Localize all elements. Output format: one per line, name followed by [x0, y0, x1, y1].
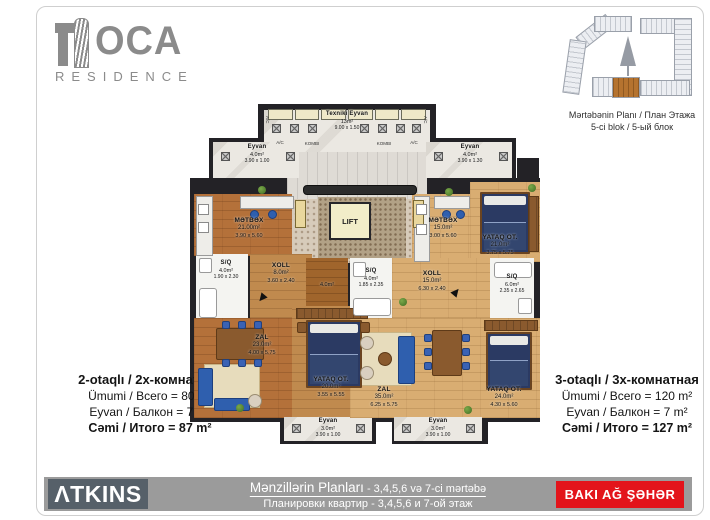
pillow: [484, 196, 526, 205]
dining-chair: [222, 359, 230, 367]
room-name: XOLL: [267, 262, 294, 270]
site-plan-caption-line1: Mərtəbənin Planı / План Этажа: [556, 109, 708, 121]
lift: LIFT: [329, 202, 371, 240]
total-area-line: Ümumi / Всего = 120 m²: [542, 388, 710, 404]
room-area: 21.00m²: [234, 225, 263, 233]
ac-unit-icon: [434, 152, 443, 161]
ac-unit-icon: [356, 424, 365, 433]
pillow: [310, 324, 358, 333]
bathtub-icon: [199, 288, 217, 318]
room-name: YATAQ OT.: [314, 376, 349, 384]
kombi-label: KOMBI: [305, 141, 320, 146]
toilet-icon: [518, 298, 532, 314]
wall-stub-top-right: [517, 158, 539, 182]
ac-label-vertical: A/C: [265, 116, 270, 124]
site-plan-caption-line2: 5-ci blok / 5-ый блок: [556, 121, 708, 133]
room-name: Eyvan: [426, 418, 451, 426]
footer-title: Mənzillərin Planları - 3,4,5,6 və 7-ci m…: [250, 480, 486, 497]
eyvan-bottom-left-label: Eyvan 3.0m² 3.90 x 1.00: [316, 418, 341, 439]
room-name: Eyvan: [316, 418, 341, 426]
zal-right-label: ZAL 35.0m² 6.25 x 5.75: [370, 386, 397, 409]
floor-plan-poster: OCA RESIDENCE Mərtəbənin Planı / План Эт…: [0, 0, 710, 520]
room-name: XOLL: [418, 270, 445, 278]
room-dims: 9.00 x 1.50: [326, 125, 368, 131]
north-arrow-icon: [620, 36, 636, 66]
site-block: [640, 80, 690, 96]
ac-unit-icon: [466, 424, 475, 433]
panel: [295, 109, 320, 120]
room-dims: 3.90 x 1.30: [458, 158, 483, 164]
summary-3-room: 3-otaqlı / 3х-комнатная Ümumi / Всего = …: [542, 372, 710, 436]
metbex-right-label: MƏTBƏX 15.0m² 3.00 x 5.60: [428, 217, 457, 240]
room-name: S/Q: [359, 268, 384, 276]
toca-t-building-icon: [55, 18, 95, 66]
room-area: 15.0m²: [428, 225, 457, 233]
armchair: [360, 336, 374, 350]
plant-icon: [445, 188, 453, 196]
dining-chair: [462, 348, 470, 356]
ac-unit-icon: [412, 124, 421, 133]
metbex-left-label: MƏTBƏX 21.00m² 3.90 x 5.60: [234, 217, 263, 240]
ac-label-vertical: A/C: [423, 116, 428, 124]
apartment-type-title: 3-otaqlı / 3х-комнатная: [542, 372, 710, 388]
bathtub-icon: [353, 298, 391, 316]
plant-icon: [464, 406, 472, 414]
bed: [486, 332, 532, 390]
site-plan-caption: Mərtəbənin Planı / План Этажа 5-ci blok …: [556, 109, 708, 133]
atkins-logo: ΛTKINS: [48, 479, 148, 509]
plant-icon: [258, 186, 266, 194]
dining-chair: [462, 362, 470, 370]
room-name: Eyvan: [245, 144, 270, 152]
room-name: YATAQ OT.: [487, 386, 522, 394]
room-area: 4.0m²: [320, 282, 334, 289]
plant-icon: [236, 404, 244, 412]
dining-chair: [462, 334, 470, 342]
kombi-label: KOMBI: [377, 141, 392, 146]
dining-chair: [424, 362, 432, 370]
stove-icon: [416, 204, 427, 215]
north-arrow-stem: [627, 64, 629, 76]
room-dims: 1.90 x 2.30: [214, 274, 239, 280]
yataq-bottom-right-label: YATAQ OT. 24.0m² 4.30 x 5.60: [487, 386, 522, 409]
room-name: ZAL: [370, 386, 397, 394]
armchair: [248, 394, 262, 408]
room-area: 21.0m²: [483, 242, 518, 250]
room-name: MƏTBƏX: [234, 217, 263, 225]
panel: [268, 109, 293, 120]
site-block: [592, 77, 614, 97]
ac-unit-icon: [378, 124, 387, 133]
dining-chair: [424, 348, 432, 356]
footer-title-main: Mənzillərin Planları: [250, 480, 364, 495]
ac-unit-icon: [290, 124, 299, 133]
plant-icon: [528, 184, 536, 192]
coffee-table: [378, 352, 392, 366]
room-dims: 3.55 x 5.55: [314, 392, 349, 399]
wardrobe: [484, 320, 538, 331]
sofa: [214, 398, 250, 411]
ac-unit-icon: [286, 152, 295, 161]
dining-chair: [254, 359, 262, 367]
baki-ag-seher-badge: BAKI AĞ ŞƏHƏR: [556, 481, 684, 508]
xoll-right-label: XOLL 15.0m² 6.30 x 2.40: [418, 270, 445, 293]
room-name: S/Q: [214, 260, 239, 268]
room-dims: 1.85 x 2.35: [359, 282, 384, 288]
room-dims: 3.90 x 1.00: [316, 432, 341, 438]
sq-left-label: S/Q 4.0m² 1.90 x 2.30: [214, 260, 239, 281]
ac-label: A/C: [410, 140, 418, 145]
nightstand: [360, 322, 370, 333]
sq-small-right-label: S/Q 4.0m² 1.85 x 2.35: [359, 268, 384, 289]
sofa: [398, 336, 415, 384]
ac-unit-icon: [272, 124, 281, 133]
room-name: Texniki Eyvan: [326, 111, 368, 119]
dining-chair: [424, 334, 432, 342]
sink-icon: [416, 224, 427, 235]
sq-big-right-label: S/Q 6.0m² 2.35 x 2.65: [500, 274, 525, 295]
toilet-icon: [199, 258, 212, 273]
stove-icon: [198, 204, 209, 215]
eyvan-bottom-right-label: Eyvan 3.0m² 3.90 x 1.00: [426, 418, 451, 439]
room-name: S/Q: [500, 274, 525, 282]
room-area: 23.0m²: [248, 342, 275, 350]
logo-text: OCA: [95, 18, 182, 64]
room-area: 20.0m²: [314, 384, 349, 392]
room-name: MƏTBƏX: [428, 217, 457, 225]
room-area: 35.0m²: [370, 394, 397, 402]
room-dims: 6.30 x 2.40: [418, 286, 445, 293]
room-dims: 4.30 x 5.60: [487, 402, 522, 409]
building-tower-icon: [74, 18, 89, 68]
room-name: YATAQ OT.: [483, 234, 518, 242]
ac-unit-icon: [499, 152, 508, 161]
ac-unit-icon: [292, 424, 301, 433]
eyvan-top-right-label: Eyvan 4.0m² 3.90 x 1.30: [458, 144, 483, 165]
dining-chair: [222, 321, 230, 329]
stair-handrail: [303, 185, 417, 195]
yataq-top-right-label: YATAQ OT. 21.0m² 3.75 x 5.75: [483, 234, 518, 257]
room-dims: 3.90 x 1.00: [426, 432, 451, 438]
t-stem: [58, 33, 68, 66]
wardrobe: [528, 196, 539, 252]
zal-left-label: ZAL 23.0m² 4.00 x 5.75: [248, 334, 275, 357]
footer-title-suffix: - 3,4,5,6 və 7-ci mərtəbə: [364, 483, 486, 495]
ac-unit-icon: [402, 424, 411, 433]
grand-total-line: Cəmi / Итого = 127 m²: [542, 420, 710, 436]
site-block-highlighted: [612, 77, 640, 98]
room-dims: 3.75 x 5.75: [483, 250, 518, 257]
room-dims: 3.90 x 1.00: [245, 158, 270, 164]
blanket: [490, 360, 528, 386]
ac-unit-icon: [396, 124, 405, 133]
footer-bar: ΛTKINS Mənzillərin Planları - 3,4,5,6 və…: [44, 477, 692, 511]
qarderob-label: 4.0m²: [320, 282, 334, 289]
ac-label: A/C: [276, 140, 284, 145]
grand-total-line: Cəmi / Итого = 87 m²: [55, 420, 245, 436]
apartment-door-left: [295, 200, 306, 228]
room-dims: 2.35 x 2.65: [500, 288, 525, 294]
room-area: 15.0m²: [418, 278, 445, 286]
lift-label: LIFT: [342, 217, 358, 226]
eyvan-top-left-label: Eyvan 4.0m² 3.90 x 1.00: [245, 144, 270, 165]
footer-subtitle: Планировки квартир - 3,4,5,6 и 7-ой этаж: [250, 498, 486, 510]
plant-icon: [399, 298, 407, 306]
kitchen-island: [240, 196, 294, 209]
toca-residence-logo: OCA RESIDENCE: [55, 18, 225, 98]
ac-unit-icon: [308, 124, 317, 133]
room-name: Eyvan: [458, 144, 483, 152]
logo-subtitle: RESIDENCE: [55, 69, 225, 84]
texniki-eyvan-label: Texniki Eyvan 13m² 9.00 x 1.50: [326, 111, 368, 132]
yataq-left-label: YATAQ OT. 20.0m² 3.55 x 5.55: [314, 376, 349, 399]
room-dims: 4.00 x 5.75: [248, 350, 275, 357]
site-block: [594, 16, 632, 32]
xoll-left-label: XOLL 8.0m² 3.60 x 2.40: [267, 262, 294, 285]
room-area: 24.0m²: [487, 394, 522, 402]
dining-chair: [238, 359, 246, 367]
pillow: [490, 336, 528, 345]
room-dims: 3.00 x 5.60: [428, 233, 457, 240]
dining-table: [432, 330, 462, 376]
room-name: ZAL: [248, 334, 275, 342]
sink-icon: [198, 222, 209, 233]
footer-title-block: Mənzillərin Planları - 3,4,5,6 və 7-ci m…: [250, 480, 486, 510]
room-dims: 3.60 x 2.40: [267, 278, 294, 285]
room-dims: 3.90 x 5.60: [234, 233, 263, 240]
dining-chair: [254, 321, 262, 329]
balcony-area-line: Eyvan / Балкон = 7 m²: [542, 404, 710, 420]
room-area: 8.0m²: [267, 270, 294, 278]
sofa: [198, 368, 213, 406]
bar-stool: [268, 210, 277, 219]
panel: [375, 109, 400, 120]
dining-chair: [238, 321, 246, 329]
ac-unit-icon: [221, 152, 230, 161]
room-dims: 6.25 x 5.75: [370, 402, 397, 409]
kitchen-island: [434, 196, 470, 209]
nightstand: [297, 322, 307, 333]
armchair: [360, 366, 374, 380]
